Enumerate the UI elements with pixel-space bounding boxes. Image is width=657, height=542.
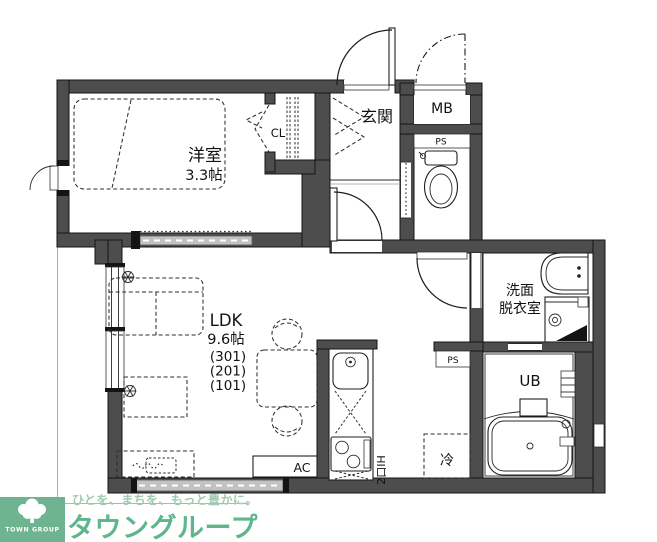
washroom (417, 252, 589, 342)
label-ldk: LDK (210, 311, 244, 330)
label-ps-upper: PS (435, 138, 446, 148)
label-unit-bath: UB (519, 372, 540, 390)
label-unit-101: (101) (210, 378, 246, 394)
ldk-window-2 (105, 331, 125, 392)
ih-stove-icon (331, 437, 371, 471)
ldk-window-1 (105, 263, 125, 331)
kitchen-counter (329, 349, 373, 480)
washbasin-icon (541, 253, 588, 294)
tv-board-outline (117, 451, 194, 477)
ub-door (508, 343, 542, 351)
logo-text: TOWN GROUP (5, 527, 59, 534)
label-washroom-1: 洗面 (506, 283, 534, 299)
label-washroom-2: 脱衣室 (499, 300, 541, 317)
floorplan-svg: 洋室 3.3帖 CL 玄関 MB PS PS LDK 9.6帖 (301) (2… (0, 0, 657, 542)
meter-box-door (416, 34, 465, 83)
plant-icon-2 (124, 386, 137, 397)
label-ldk-size: 9.6帖 (207, 331, 245, 348)
floorplan-page: 洋室 3.3帖 CL 玄関 MB PS PS LDK 9.6帖 (301) (2… (0, 0, 657, 542)
ldk-sliding-window (131, 478, 289, 493)
label-ac: AC (293, 460, 310, 475)
laundry-pan-icon (545, 297, 589, 342)
bathtub-icon (488, 417, 572, 475)
label-western-room: 洋室 (188, 146, 222, 166)
side-window-door (30, 160, 70, 196)
bath-window (594, 424, 604, 447)
label-entrance: 玄関 (361, 107, 393, 126)
label-western-room-size: 3.3帖 (185, 167, 223, 184)
label-fridge: 冷 (440, 453, 454, 469)
entrance-door (337, 28, 395, 93)
toilet-door (401, 162, 411, 218)
brand-tagline: ひとを、まちを、もっと豊かに。 (72, 492, 258, 507)
unit-bath (484, 343, 575, 476)
label-meter-box: MB (431, 101, 453, 117)
brand-footer: TOWN GROUP ひとを、まちを、もっと豊かに。 タウングループ (0, 492, 258, 542)
toilet-fixture (419, 151, 458, 208)
brand-name: タウングループ (67, 512, 258, 542)
label-ih-stove: 2口IH (375, 455, 388, 485)
hall-ldk-door (330, 188, 382, 252)
low-table-outline (124, 377, 187, 417)
label-ps-lower: PS (447, 356, 458, 366)
dining-set-outline (257, 319, 317, 436)
label-closet: CL (271, 126, 286, 140)
washroom-door (417, 252, 482, 308)
